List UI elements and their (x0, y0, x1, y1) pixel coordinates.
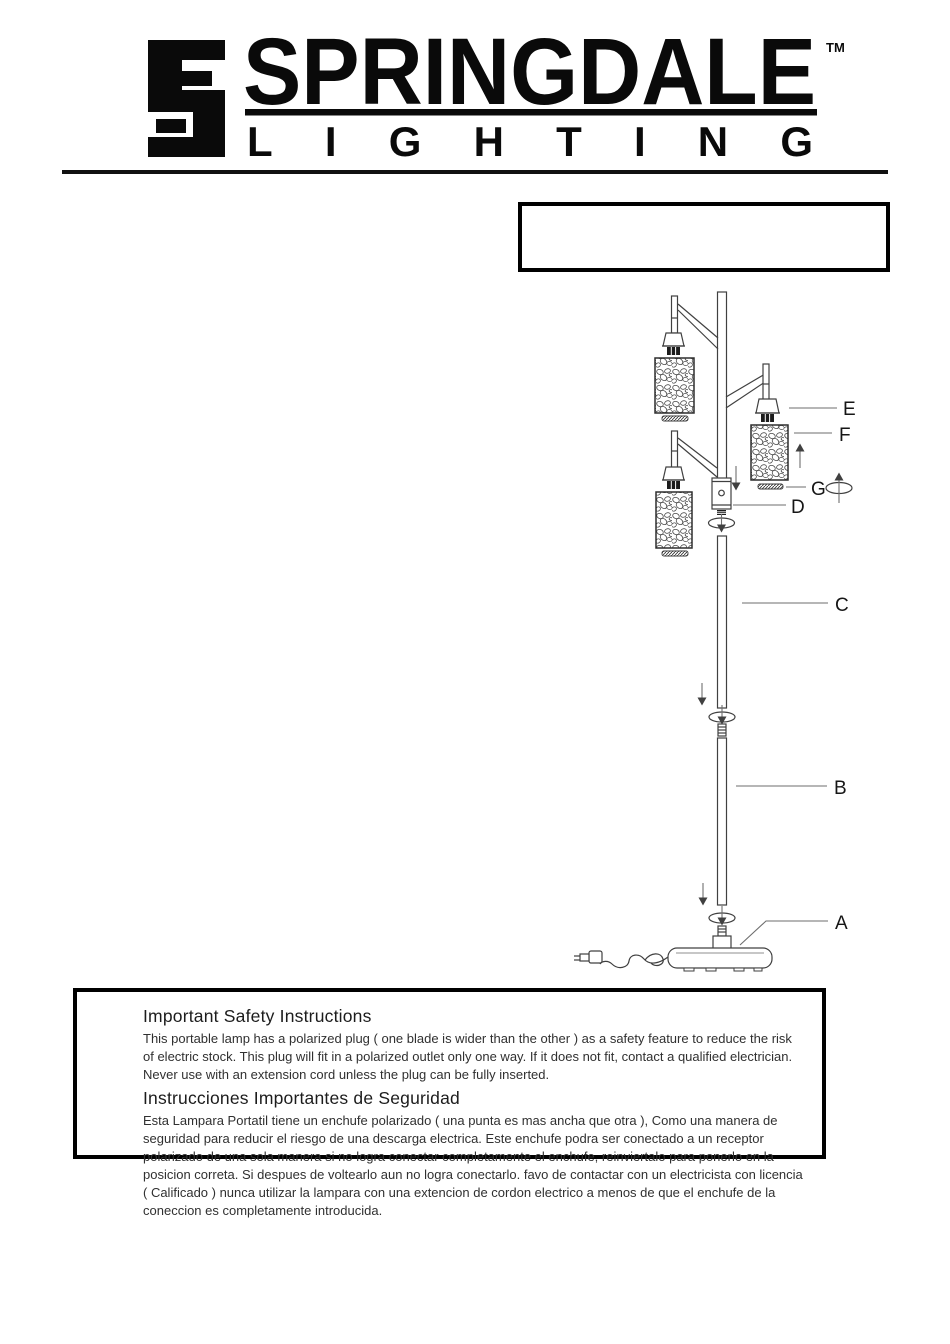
socket-cap-3 (663, 467, 684, 480)
power-cord (574, 951, 668, 968)
shade-ring-1 (662, 416, 688, 421)
socket-collar-2 (761, 414, 774, 422)
lamp-arm-1 (678, 304, 718, 349)
safety-body-en: This portable lamp has a polarized plug … (143, 1030, 803, 1084)
label-a: A (835, 913, 848, 934)
safety-body-es: Esta Lampara Portatil tiene un enchufe p… (143, 1112, 803, 1220)
pole-section-c (718, 536, 727, 708)
pole-top-section (718, 292, 727, 479)
header-divider (62, 170, 888, 174)
label-g: G (811, 479, 826, 500)
base-body (668, 948, 772, 968)
safety-title-en: Important Safety Instructions (143, 1006, 792, 1027)
brand-mark-icon (148, 40, 225, 157)
label-f: F (839, 425, 851, 446)
socket-collar-3 (667, 481, 680, 489)
pole-section-b (718, 738, 727, 905)
socket-tube-2 (763, 364, 769, 400)
label-c: C (835, 595, 849, 616)
brand-subtitle: LIGHTING (247, 118, 813, 165)
lamp-head-1 (655, 296, 694, 421)
switch-housing (712, 478, 731, 515)
shade-ring-2 (758, 484, 783, 489)
threaded-nipple-2 (718, 926, 726, 936)
instruction-sheet-page: SPRINGDALE TM LIGHTING (0, 0, 950, 1344)
label-e: E (843, 399, 856, 420)
safety-instructions-box: Important Safety Instructions This porta… (73, 988, 826, 1159)
brand-underline (245, 109, 817, 116)
shade-ring-3 (662, 551, 688, 556)
glass-shade-2 (751, 425, 788, 480)
label-b: B (834, 778, 847, 799)
coupling-1 (709, 514, 735, 531)
power-plug (589, 951, 602, 963)
lamp-assembly-diagram: E F G D C B A (560, 285, 900, 985)
trademark-symbol: TM (826, 40, 845, 55)
socket-tube-1 (672, 296, 678, 333)
socket-collar-1 (667, 347, 680, 355)
model-number-box (518, 202, 890, 272)
socket-tube-3 (672, 431, 678, 468)
lamp-base (668, 936, 772, 971)
label-d: D (791, 497, 805, 518)
lamp-head-2 (751, 364, 788, 489)
rotate-icon (826, 474, 852, 503)
socket-cap-2 (756, 399, 779, 413)
rotary-switch-knob (719, 490, 725, 496)
glass-shade-1 (655, 358, 694, 413)
glass-shade-3 (656, 492, 692, 548)
socket-cap-1 (663, 333, 684, 346)
leader-a (740, 921, 828, 945)
lamp-arm-3 (678, 438, 717, 477)
safety-title-es: Instrucciones Importantes de Seguridad (143, 1088, 792, 1109)
lamp-head-3 (656, 431, 692, 556)
